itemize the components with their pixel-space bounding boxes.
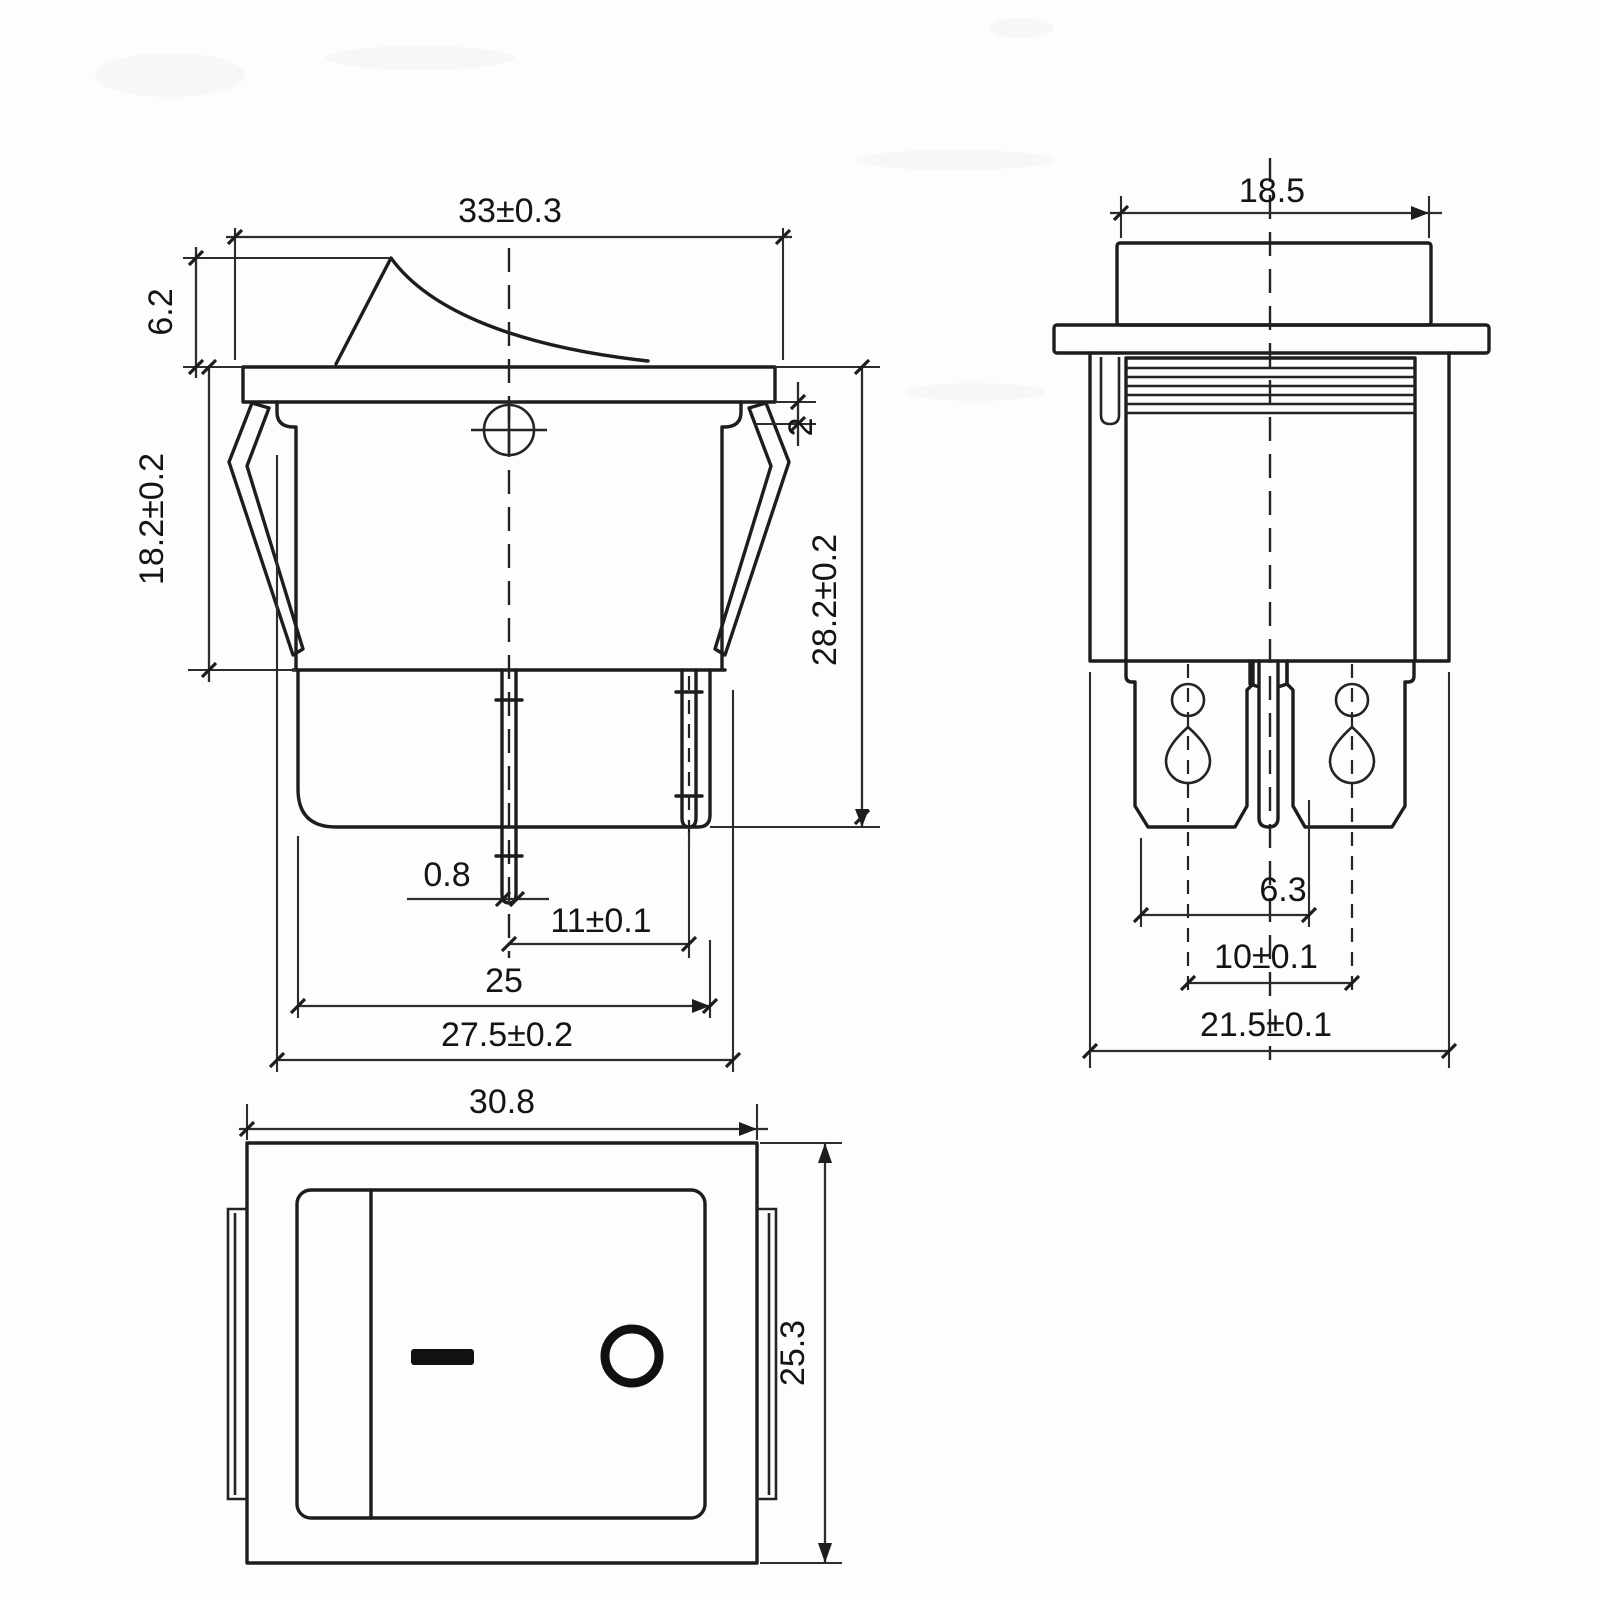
scan-artifacts (95, 18, 1055, 401)
side-snap-arm-left (229, 403, 303, 655)
dim-top-width: 30.8 (239, 1083, 768, 1140)
top-bezel (247, 1143, 757, 1563)
dim-label-top-width: 30.8 (469, 1083, 535, 1121)
dim-label-rocker-height: 6.2 (142, 288, 180, 335)
dim-label-terminal-offset: 6.3 (1259, 871, 1306, 909)
front-rocker-knob (1117, 243, 1431, 325)
side-snap-arm-right (715, 403, 789, 655)
dim-side-rocker-height: 6.2 (142, 247, 390, 378)
dim-label-terminal-pitch: 10±0.1 (1214, 938, 1318, 976)
dim-side-pin-pitch: 11±0.1 (502, 832, 696, 958)
dim-side-panel-step: 2 (756, 382, 820, 446)
dim-label-flange-width: 33±0.3 (458, 192, 562, 230)
dim-label-top-height: 25.3 (774, 1320, 812, 1386)
dim-label-clip-span: 27.5±0.2 (441, 1016, 573, 1054)
drawing-page: 33±0.3 6.2 18.2±0.2 2 (0, 0, 1599, 1599)
dim-side-pin-thickness: 0.8 (407, 856, 549, 906)
front-flange (1054, 325, 1489, 353)
terminal-keyhole-icon (1166, 727, 1210, 783)
side-rocker-outline (336, 258, 648, 364)
top-rocker-window (297, 1190, 705, 1518)
on-symbol-icon (411, 1349, 474, 1365)
dim-front-terminal-offset: 6.3 (1134, 800, 1316, 927)
front-view: 18.5 6.3 10±0.1 21.5±0.1 (1054, 158, 1489, 1068)
dim-label-overall-height: 28.2±0.2 (806, 534, 844, 666)
top-clip-left (228, 1209, 247, 1499)
dim-label-pin-thickness: 0.8 (423, 856, 470, 894)
dim-label-front-body-width: 21.5±0.1 (1200, 1006, 1332, 1044)
dim-label-pin-pitch: 11±0.1 (550, 902, 651, 940)
front-center-pin (1250, 661, 1287, 827)
dim-front-rocker-width: 18.5 (1110, 172, 1442, 238)
dim-front-terminal-pitch: 10±0.1 (1181, 938, 1359, 990)
top-view: 30.8 25.3 (228, 1083, 842, 1563)
side-view: 33±0.3 6.2 18.2±0.2 2 (133, 192, 880, 1072)
side-lower-housing (298, 670, 710, 827)
terminal-keyhole-icon (1330, 727, 1374, 783)
rocker-switch-dimension-drawing: 33±0.3 6.2 18.2±0.2 2 (0, 0, 1599, 1599)
front-latch-detail (1101, 357, 1119, 424)
dim-label-panel-step: 2 (782, 418, 820, 437)
dim-side-body-width: 25 (291, 836, 717, 1018)
off-symbol-icon (605, 1329, 659, 1383)
dim-side-body-depth: 18.2±0.2 (133, 360, 296, 682)
dim-label-body-depth: 18.2±0.2 (133, 453, 171, 585)
dim-label-rocker-width: 18.5 (1239, 172, 1305, 210)
dim-label-body-width: 25 (485, 962, 523, 1000)
